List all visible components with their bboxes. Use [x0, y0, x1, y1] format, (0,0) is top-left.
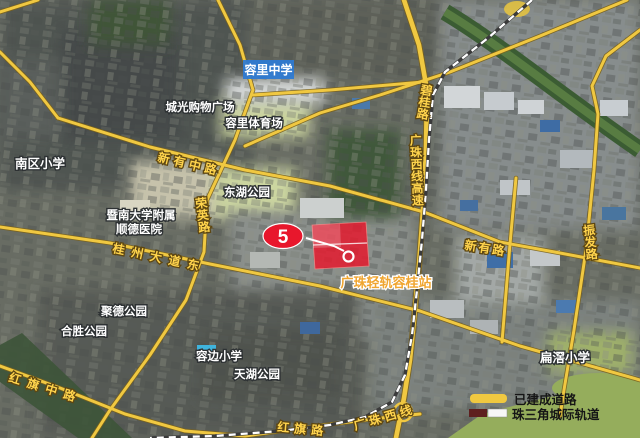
label-shopping-plaza: 城光购物广场: [166, 100, 235, 114]
map-screenshot: 5 容里中学 城光购物广场 容里体育场 南区小学 东湖公园 暨南大学附属 顺德医…: [0, 0, 640, 438]
label-hospital-line1: 暨南大学附属: [107, 208, 176, 222]
label-rongli-middle-school: 容里中学: [243, 62, 292, 77]
legend-built-road-label: 已建成道路: [514, 392, 577, 407]
label-nanqu-primary: 南区小学: [15, 156, 66, 171]
legend-rail-label: 珠三角城际轨道: [512, 407, 600, 422]
highlight-parcel: [312, 222, 369, 269]
label-rongli-stadium: 容里体育场: [224, 116, 283, 130]
label-hesheng-park: 合胜公园: [61, 324, 107, 338]
label-bianjiao-primary: 扁滘小学: [539, 350, 591, 365]
label-hospital-line2: 顺德医院: [116, 222, 162, 236]
label-ronggui-station: 广珠轻轨容桂站: [340, 275, 431, 290]
legend-swatch-rail-dark: [469, 409, 487, 417]
legend-swatch-rail-light: [488, 409, 507, 417]
satellite-base: [0, 0, 640, 438]
legend-swatch-road: [470, 394, 507, 403]
marker-5-number: 5: [278, 227, 289, 248]
label-jude-park: 聚德公园: [100, 304, 147, 318]
label-donghu-park: 东湖公园: [224, 185, 270, 199]
road-label-guangzhu-west-expressway: 广珠西线高速: [408, 132, 425, 206]
label-tianhu-park: 天湖公园: [234, 367, 280, 381]
label-rongbian-primary: 容边小学: [195, 349, 242, 363]
satellite-map[interactable]: 5 容里中学 城光购物广场 容里体育场 南区小学 东湖公园 暨南大学附属 顺德医…: [0, 0, 640, 438]
